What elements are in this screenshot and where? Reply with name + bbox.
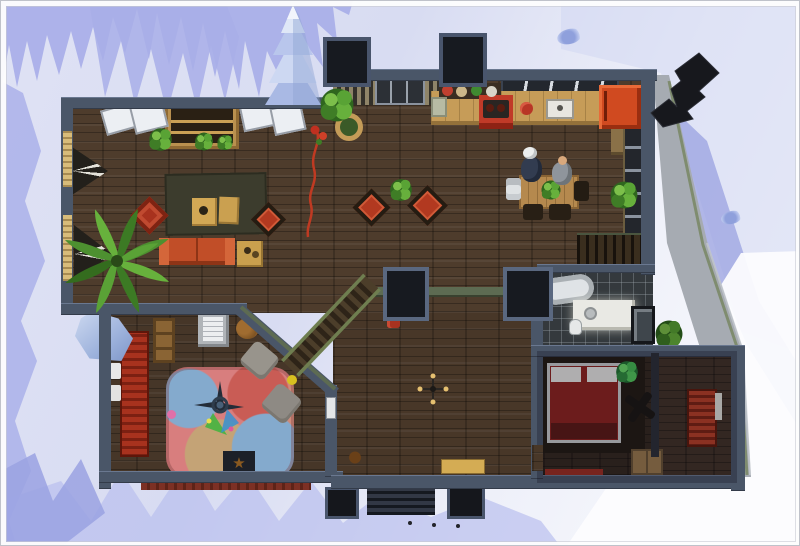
hall-column xyxy=(383,267,429,321)
snow-dimple xyxy=(720,209,744,227)
potted-plant-dining[interactable] xyxy=(609,179,639,211)
porch-steps[interactable] xyxy=(367,487,435,515)
hall-plant[interactable] xyxy=(389,177,413,203)
snowy-spruce-tree[interactable] xyxy=(265,3,321,107)
pebble xyxy=(408,521,412,525)
toy-shelf[interactable] xyxy=(153,318,175,363)
dining-chair[interactable] xyxy=(523,204,543,220)
dining-chair[interactable] xyxy=(574,181,589,201)
stove-burner xyxy=(486,104,494,112)
hall-column xyxy=(503,267,553,321)
pink-toy[interactable] xyxy=(167,410,176,419)
kids-room-door[interactable] xyxy=(326,397,336,419)
entry-glass-door[interactable] xyxy=(375,77,425,105)
sink-faucet xyxy=(557,105,563,111)
gyroscope-toy[interactable] xyxy=(187,379,253,449)
monstera-plant[interactable] xyxy=(317,87,357,123)
side-table[interactable] xyxy=(237,241,263,267)
porch-planter[interactable] xyxy=(447,486,485,519)
coffee-table-2[interactable] xyxy=(219,197,240,225)
kids-bottom-wall xyxy=(99,471,343,483)
curtain[interactable] xyxy=(63,131,72,187)
bath-top-wall xyxy=(537,264,655,273)
chimney-vane xyxy=(647,51,727,135)
side-table-decor xyxy=(244,247,251,254)
potted-plant[interactable] xyxy=(193,132,215,151)
sim-guest[interactable] xyxy=(552,162,572,185)
chimney xyxy=(323,37,371,87)
potted-plant[interactable] xyxy=(216,134,234,151)
floor-splotch xyxy=(347,451,363,464)
toilet[interactable] xyxy=(569,319,582,335)
chimney xyxy=(439,33,487,87)
palm-plant[interactable] xyxy=(53,209,177,321)
red-pot[interactable] xyxy=(520,102,533,115)
shower-stall[interactable] xyxy=(631,306,655,344)
fridge-handles xyxy=(604,91,607,121)
sims-topdown-screenshot: ★ xyxy=(0,0,800,546)
dish-stack[interactable] xyxy=(506,178,521,200)
potted-plant[interactable] xyxy=(147,127,174,152)
vanity-basin xyxy=(584,307,597,320)
yellow-toy[interactable] xyxy=(287,375,297,385)
porch-planter[interactable] xyxy=(325,487,359,519)
desk-paper xyxy=(203,316,223,341)
bedroom-door-gap[interactable] xyxy=(532,445,543,471)
sim-guest-head xyxy=(558,156,567,165)
kids-left-wall xyxy=(99,303,111,489)
trash-can[interactable] xyxy=(431,97,447,117)
top-wall-upper xyxy=(327,69,657,81)
bedroom-dim-overlay xyxy=(537,351,737,483)
coffee-table-bowl[interactable] xyxy=(199,206,208,215)
hall-floor xyxy=(333,311,543,483)
dining-chair[interactable] xyxy=(549,204,571,220)
vanity-sink[interactable] xyxy=(573,300,635,330)
hall-doormat[interactable] xyxy=(441,459,485,474)
teddy-bear[interactable] xyxy=(236,318,259,339)
sim-chef[interactable] xyxy=(521,157,542,182)
snow-dimple xyxy=(556,26,584,47)
sim-chef-hat xyxy=(523,147,537,159)
bed-pillow-white xyxy=(110,363,121,379)
